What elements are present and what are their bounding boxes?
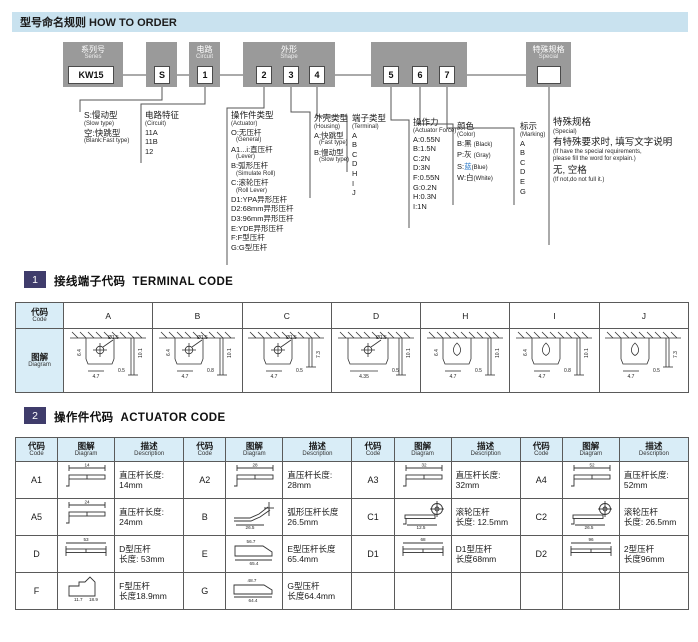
actuator-diagram-A5: 24: [58, 499, 115, 536]
actuator-diagram-E: 56.765.4: [226, 536, 283, 573]
actuator-code-F: F: [16, 573, 58, 610]
svg-text:26.5: 26.5: [584, 525, 593, 530]
terminal-diagram-I: 6.44.70.810.1: [510, 329, 599, 393]
spec-line: (If not,do not full it.): [553, 177, 672, 184]
flow-group-label-en: Series: [63, 54, 123, 61]
spec-column-special-spec: 特殊规格(Special)有特殊要求时, 填写文字说明(If have the …: [553, 116, 672, 184]
spec-line: (Simulate Roll): [231, 171, 294, 178]
spec-line: I: [352, 179, 386, 189]
terminal-column-A: A: [64, 303, 153, 329]
spec-line-part: (Blue): [472, 165, 488, 171]
actuator-code-A5: A5: [16, 499, 58, 536]
spec-column-housing-type: 外壳类型(Housing)A:快跳型(Fast type)B:慢动型(Slow …: [314, 113, 349, 164]
terminal-column-J: J: [599, 303, 688, 329]
spec-line: O:无压杆: [231, 128, 294, 138]
spec-line: S:慢动型: [84, 110, 129, 121]
spec-line: C:滚轮压杆: [231, 178, 294, 188]
spec-line: (Color): [457, 132, 493, 139]
actuator-desc-A1: 直压杆长度:14mm: [115, 462, 184, 499]
terminal-code-header: 代码Code: [16, 303, 64, 329]
actuator-diagram-C2: 26.5: [562, 499, 619, 536]
svg-text:Ø1.5: Ø1.5: [376, 335, 387, 341]
section-1-title-cn: 接线端子代码: [54, 276, 125, 288]
spec-line: E:YDE异形压杆: [231, 224, 294, 234]
spec-column-circuit-feature: 电路特征(Circuit)11A11B12: [145, 110, 179, 156]
svg-text:68: 68: [420, 537, 426, 542]
actuator-desc-header: 描述Description: [619, 438, 688, 462]
section-2-title: 操作件代码ACTUATOR CODE: [54, 409, 226, 425]
svg-text:64.4: 64.4: [249, 598, 258, 603]
spec-line: 标示: [520, 121, 545, 132]
terminal-table: 代码CodeABCDHIJ图解DiagramØ1.56.44.70.510.1Ø…: [15, 302, 689, 393]
spec-line: (Terminal): [352, 124, 386, 131]
spec-line: (Roll Lever): [231, 188, 294, 195]
spec-line: (Actuator): [231, 121, 294, 128]
svg-text:18.9: 18.9: [89, 597, 98, 602]
actuator-empty-cell: [352, 573, 394, 610]
spec-line: H: [352, 169, 386, 179]
svg-text:4.7: 4.7: [449, 374, 456, 380]
actuator-diagram-header: 图解Diagram: [562, 438, 619, 462]
actuator-code-A1: A1: [16, 462, 58, 499]
svg-text:4.7: 4.7: [182, 374, 189, 380]
svg-text:0.5: 0.5: [392, 368, 399, 374]
spec-line: C:2N: [413, 154, 456, 164]
section-2-title-en: ACTUATOR CODE: [121, 412, 226, 424]
actuator-code-header: 代码Code: [352, 438, 394, 462]
svg-text:6.4: 6.4: [434, 349, 440, 356]
flow-code-box-7: 7: [439, 66, 455, 84]
svg-text:6.4: 6.4: [77, 349, 83, 356]
svg-text:4.7: 4.7: [628, 374, 635, 380]
svg-text:6.4: 6.4: [166, 349, 172, 356]
svg-text:12.5: 12.5: [416, 525, 425, 530]
actuator-code-A2: A2: [184, 462, 226, 499]
spec-line: (Slow type): [84, 121, 129, 128]
spec-line: please fill the word for explain.): [553, 156, 672, 163]
svg-text:0.5: 0.5: [475, 368, 482, 374]
spec-line: (Slow type): [314, 157, 349, 164]
actuator-code-D2: D2: [520, 536, 562, 573]
svg-text:7.3: 7.3: [316, 351, 322, 358]
spec-line: (Fast type): [314, 140, 349, 147]
actuator-diagram-D2: 96: [562, 536, 619, 573]
actuator-diagram-A1: 14: [58, 462, 115, 499]
svg-text:10.1: 10.1: [495, 348, 501, 358]
svg-text:4.35: 4.35: [359, 374, 369, 380]
svg-text:4.7: 4.7: [271, 374, 278, 380]
terminal-diagram-header: 图解Diagram: [16, 329, 64, 393]
svg-text:0.5: 0.5: [118, 368, 125, 374]
spec-line: 无, 空格: [553, 164, 672, 177]
spec-line: (Marking): [520, 132, 545, 139]
svg-text:0.8: 0.8: [207, 368, 214, 374]
actuator-diagram-C1: 12.5: [394, 499, 451, 536]
actuator-diagram-A3: 32: [394, 462, 451, 499]
flow-code-box-S: S: [154, 66, 170, 84]
terminal-code-table: 代码CodeABCDHIJ图解DiagramØ1.56.44.70.510.1Ø…: [15, 302, 689, 393]
actuator-code-header: 代码Code: [16, 438, 58, 462]
actuator-diagram-header: 图解Diagram: [226, 438, 283, 462]
terminal-column-H: H: [421, 303, 510, 329]
spec-column-color: 颜色(Color)B:黑 (Black)P:灰 (Gray)S:蓝(Blue)W…: [457, 121, 493, 185]
svg-text:48.7: 48.7: [248, 578, 257, 583]
spec-line: (General): [231, 137, 294, 144]
spec-line: F:0.55N: [413, 173, 456, 183]
actuator-empty-cell: [520, 573, 562, 610]
flow-code-box-blank: [537, 66, 561, 84]
flow-code-box-4: 4: [309, 66, 325, 84]
spec-line: G:G型压杆: [231, 243, 294, 253]
spec-line: (Special): [553, 129, 672, 136]
actuator-desc-header: 描述Description: [115, 438, 184, 462]
actuator-code-D1: D1: [352, 536, 394, 573]
svg-text:26.5: 26.5: [246, 525, 255, 530]
spec-line: 11A: [145, 128, 179, 138]
svg-text:32: 32: [421, 463, 427, 468]
svg-text:0.5: 0.5: [296, 368, 303, 374]
terminal-column-I: I: [510, 303, 599, 329]
actuator-diagram-header: 图解Diagram: [58, 438, 115, 462]
actuator-code-header: 代码Code: [520, 438, 562, 462]
actuator-code-header: 代码Code: [184, 438, 226, 462]
svg-text:7.3: 7.3: [673, 351, 679, 358]
actuator-diagram-D1: 68: [394, 536, 451, 573]
page-title: 型号命名规则 HOW TO ORDER: [12, 12, 688, 32]
actuator-code-G: G: [184, 573, 226, 610]
spec-column-terminal-type: 端子类型(Terminal)ABCDHIJ: [352, 113, 386, 198]
terminal-diagram-A: Ø1.56.44.70.510.1: [64, 329, 153, 393]
actuator-code-B: B: [184, 499, 226, 536]
flow-code-box-2: 2: [256, 66, 272, 84]
section-2-badge: 2: [24, 407, 46, 424]
spec-line: D: [352, 159, 386, 169]
spec-column-actuator-force: 操作力(Actuator Force)A:0.55NB:1.5NC:2ND:3N…: [413, 117, 456, 211]
flow-group-label-cn: 特殊规格: [526, 45, 571, 54]
terminal-diagram-C: Ø1.54.70.57.3: [242, 329, 331, 393]
actuator-desc-D2: 2型压杆长度96mm: [619, 536, 688, 573]
actuator-desc-D: D型压杆长度: 53mm: [115, 536, 184, 573]
actuator-diagram-B: 26.5: [226, 499, 283, 536]
svg-text:53: 53: [84, 537, 90, 542]
spec-line: 操作件类型: [231, 110, 294, 121]
spec-line: B:弧形压杆: [231, 161, 294, 171]
actuator-empty-cell: [562, 573, 619, 610]
svg-text:14: 14: [85, 463, 91, 468]
terminal-diagram-H: 6.44.70.510.1: [421, 329, 510, 393]
spec-line: A: [352, 131, 386, 141]
actuator-code-D: D: [16, 536, 58, 573]
svg-text:0.5: 0.5: [653, 368, 660, 374]
terminal-diagram-B: Ø1.56.44.70.810.1: [153, 329, 242, 393]
section-1-title: 接线端子代码TERMINAL CODE: [54, 273, 233, 289]
flow-group-label-cn: 电路: [189, 45, 220, 54]
section-2-title-cn: 操作件代码: [54, 412, 114, 424]
spec-line: D:3N: [413, 163, 456, 173]
spec-line: P:灰 (Gray): [457, 150, 493, 162]
svg-text:28: 28: [253, 463, 259, 468]
spec-line: A:0.55N: [413, 135, 456, 145]
spec-line: (If have the special requirements,: [553, 149, 672, 156]
spec-line: 外壳类型: [314, 113, 349, 124]
actuator-code-E: E: [184, 536, 226, 573]
actuator-desc-F: F型压杆长度18.9mm: [115, 573, 184, 610]
spec-line: A:快跳型: [314, 131, 349, 141]
actuator-desc-E: E型压杆长度65.4mm: [283, 536, 352, 573]
actuator-code-C1: C1: [352, 499, 394, 536]
spec-line: A1...i:直压杆: [231, 145, 294, 155]
spec-line: I:1N: [413, 202, 456, 212]
spec-line: E: [520, 177, 545, 187]
spec-line: A: [520, 139, 545, 149]
flow-code-box-5: 5: [383, 66, 399, 84]
flow-group-label-en: Circuit: [189, 54, 220, 61]
spec-column-marking: 标示(Marking)ABCDEG: [520, 121, 545, 196]
spec-line: C: [520, 158, 545, 168]
terminal-column-C: C: [242, 303, 331, 329]
spec-line: 空:快跳型: [84, 128, 129, 139]
spec-line: 操作力: [413, 117, 456, 128]
flow-code-box-3: 3: [283, 66, 299, 84]
spec-line: B:黑 (Black): [457, 139, 493, 151]
actuator-diagram-header: 图解Diagram: [394, 438, 451, 462]
svg-text:11.7: 11.7: [74, 597, 83, 602]
spec-line: 电路特征: [145, 110, 179, 121]
actuator-empty-cell: [394, 573, 451, 610]
svg-text:52: 52: [589, 463, 595, 468]
actuator-code-C2: C2: [520, 499, 562, 536]
spec-line: C: [352, 150, 386, 160]
spec-line: 特殊规格: [553, 116, 672, 129]
flow-code-box-6: 6: [412, 66, 428, 84]
spec-line: 11B: [145, 137, 179, 147]
flow-group-label-cn: 外形: [243, 45, 335, 54]
actuator-desc-D1: D1型压杆长度68mm: [451, 536, 520, 573]
actuator-desc-B: 弧形压杆长度26.5mm: [283, 499, 352, 536]
spec-line: 12: [145, 147, 179, 157]
svg-text:96: 96: [588, 537, 594, 542]
spec-line: B: [520, 148, 545, 158]
terminal-diagram-J: 4.70.57.3: [599, 329, 688, 393]
spec-line-part: W:白: [457, 173, 474, 182]
spec-line: (Housing): [314, 124, 349, 131]
actuator-diagram-A2: 28: [226, 462, 283, 499]
actuator-diagram-G: 48.764.4: [226, 573, 283, 610]
spec-line: (Circuit): [145, 121, 179, 128]
actuator-code-A4: A4: [520, 462, 562, 499]
spec-line-part: (Gray): [474, 153, 491, 159]
spec-line-part: 蓝: [464, 162, 472, 171]
spec-column-actuator-type: 操作件类型(Actuator)O:无压杆(General)A1...i:直压杆(…: [231, 110, 294, 252]
spec-line-part: P:灰: [457, 150, 474, 159]
actuator-code-A3: A3: [352, 462, 394, 499]
spec-line: F:F型压杆: [231, 233, 294, 243]
svg-text:0.8: 0.8: [564, 368, 571, 374]
section-1-title-en: TERMINAL CODE: [132, 276, 233, 288]
terminal-diagram-D: Ø1.54.350.510.1: [331, 329, 420, 393]
spec-line-part: B:黑: [457, 139, 474, 148]
terminal-column-D: D: [331, 303, 420, 329]
spec-line-part: (White): [474, 176, 493, 182]
actuator-code-table: 代码Code图解Diagram描述Description代码Code图解Diag…: [15, 437, 689, 610]
flow-group-label-cn: 系列号: [63, 45, 123, 54]
spec-line: G: [520, 187, 545, 197]
spec-line: W:白(White): [457, 173, 493, 185]
svg-text:6.4: 6.4: [523, 349, 529, 356]
terminal-column-B: B: [153, 303, 242, 329]
spec-line: G:0.2N: [413, 183, 456, 193]
actuator-desc-A4: 直压杆长度:52mm: [619, 462, 688, 499]
actuator-diagram-A4: 52: [562, 462, 619, 499]
actuator-desc-header: 描述Description: [283, 438, 352, 462]
spec-line-part: (Black): [474, 142, 493, 148]
flow-code-box-KW15: KW15: [68, 66, 114, 84]
actuator-desc-A2: 直压杆长度:28mm: [283, 462, 352, 499]
svg-text:4.7: 4.7: [539, 374, 546, 380]
spec-line: 端子类型: [352, 113, 386, 124]
actuator-desc-C2: 滚轮压杆长度: 26.5mm: [619, 499, 688, 536]
spec-line: (Actuator Force): [413, 128, 456, 135]
svg-text:Ø1.5: Ø1.5: [108, 335, 119, 341]
spec-line: B:1.5N: [413, 144, 456, 154]
svg-text:Ø1.5: Ø1.5: [286, 335, 297, 341]
svg-text:10.1: 10.1: [584, 348, 590, 358]
spec-line: B:慢动型: [314, 148, 349, 158]
spec-line: D2:68mm异形压杆: [231, 204, 294, 214]
spec-line: 颜色: [457, 121, 493, 132]
actuator-diagram-D: 53: [58, 536, 115, 573]
actuator-table: 代码Code图解Diagram描述Description代码Code图解Diag…: [15, 437, 689, 610]
flow-group-label-en: Special: [526, 54, 571, 61]
flow-group-label-en: Shape: [243, 54, 335, 61]
actuator-desc-A5: 直压杆长度:24mm: [115, 499, 184, 536]
spec-line: D: [520, 167, 545, 177]
svg-text:Ø1.5: Ø1.5: [197, 335, 208, 341]
section-1-badge: 1: [24, 271, 46, 288]
spec-line: D3:96mm异形压杆: [231, 214, 294, 224]
spec-line: 有特殊要求时, 填写文字说明: [553, 136, 672, 149]
svg-text:4.7: 4.7: [92, 374, 99, 380]
spec-line: S:蓝(Blue): [457, 162, 493, 174]
spec-line: B: [352, 140, 386, 150]
spec-column-speed-type: S:慢动型(Slow type)空:快跳型(Blank:Fast type): [84, 110, 129, 145]
spec-line: J: [352, 188, 386, 198]
actuator-empty-cell: [619, 573, 688, 610]
svg-text:10.1: 10.1: [138, 348, 144, 358]
actuator-desc-A3: 直压杆长度:32mm: [451, 462, 520, 499]
actuator-desc-header: 描述Description: [451, 438, 520, 462]
actuator-desc-C1: 滚轮压杆长度: 12.5mm: [451, 499, 520, 536]
svg-text:65.4: 65.4: [250, 561, 259, 566]
spec-line: (Blank:Fast type): [84, 138, 129, 145]
actuator-empty-cell: [451, 573, 520, 610]
svg-text:10.1: 10.1: [227, 348, 233, 358]
svg-text:24: 24: [85, 500, 91, 505]
svg-text:56.7: 56.7: [247, 539, 256, 544]
spec-line: H:0.3N: [413, 192, 456, 202]
actuator-desc-G: G型压杆长度64.4mm: [283, 573, 352, 610]
svg-text:10.1: 10.1: [406, 348, 412, 358]
actuator-diagram-F: 11.718.9: [58, 573, 115, 610]
flow-code-box-1: 1: [197, 66, 213, 84]
